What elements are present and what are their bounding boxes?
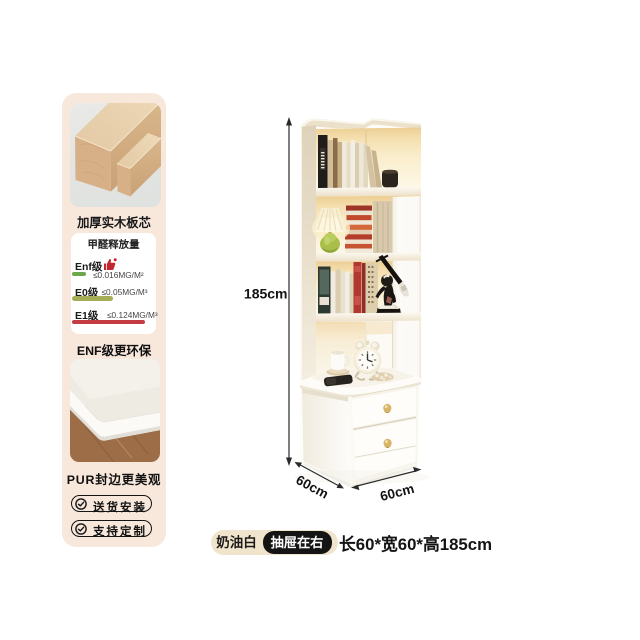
svg-text:185cm: 185cm	[244, 286, 288, 302]
svg-text:60cm: 60cm	[379, 481, 416, 504]
